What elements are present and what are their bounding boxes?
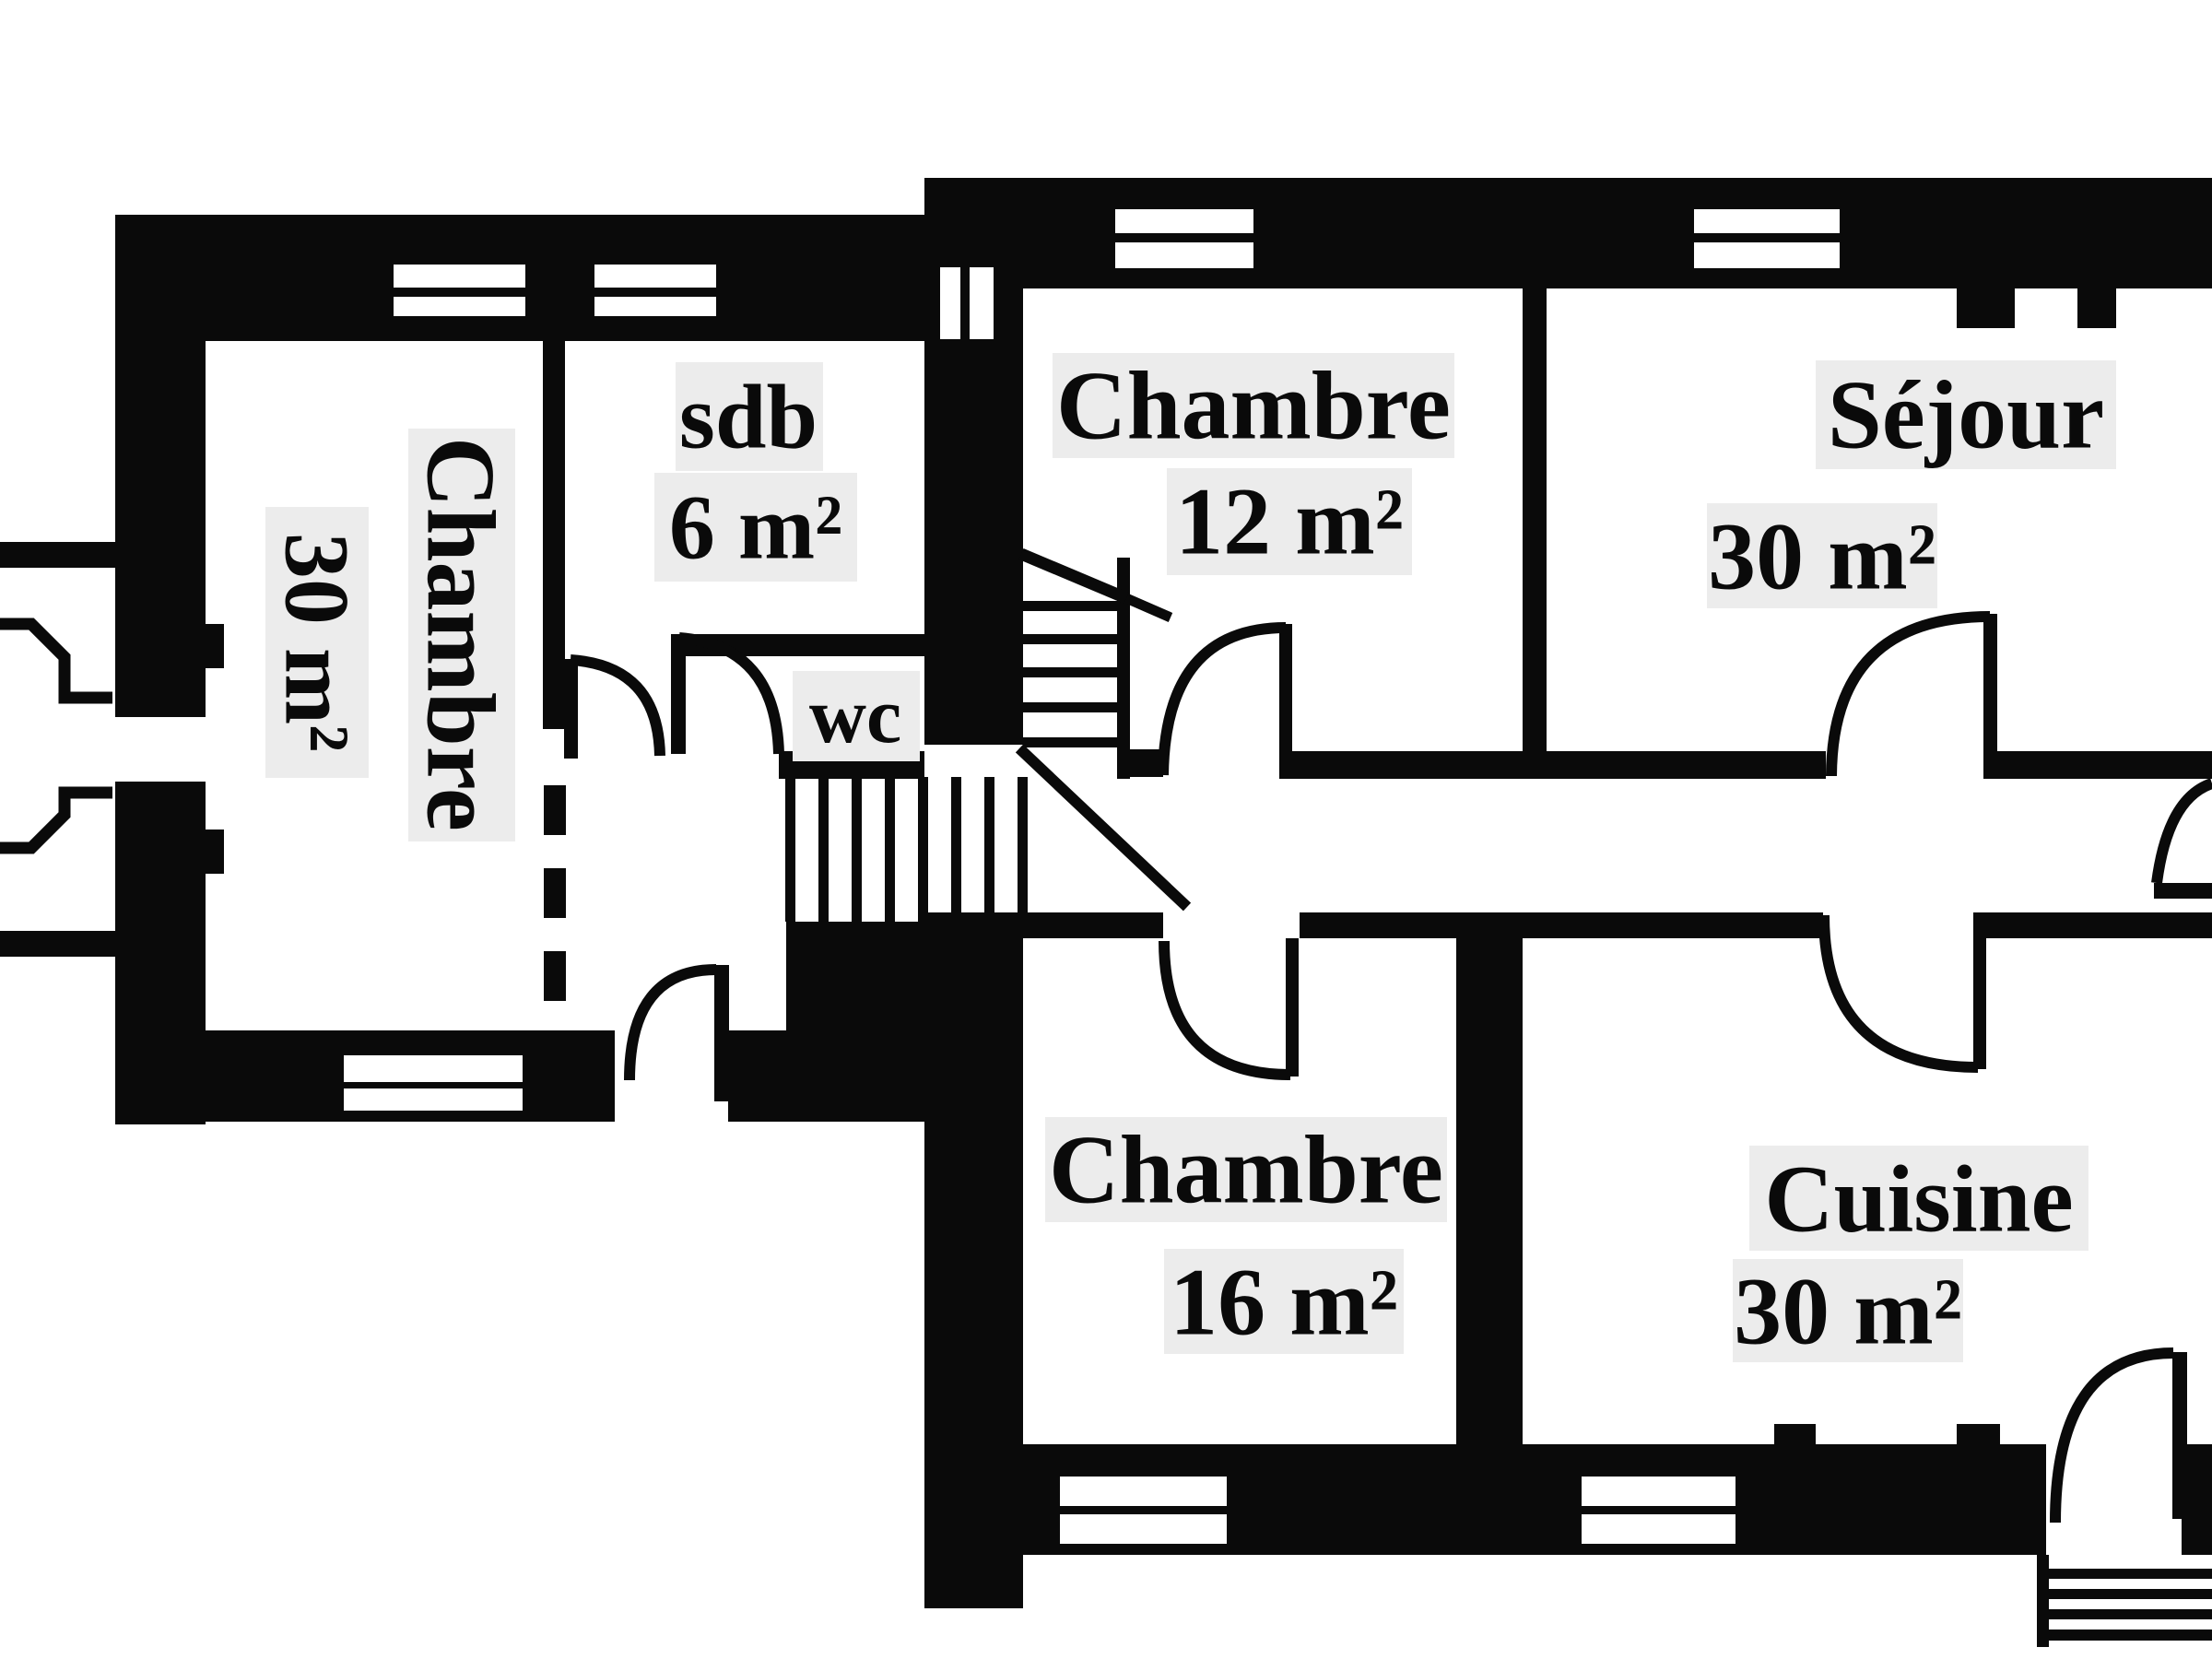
stairs-up-tread — [1023, 601, 1117, 611]
floor-plan-drawing: Chambre 30 m² sdb 6 m² wc Chambre 12 m² … — [0, 0, 2212, 1659]
door-jamb-tab-cuisine-right — [1957, 1424, 2000, 1444]
exterior-step — [2048, 1630, 2212, 1641]
room-area-sdb: 6 m² — [669, 477, 842, 579]
room-name-chambre-16: Chambre — [1049, 1116, 1443, 1224]
wall-corridor-lower-a — [1023, 912, 1163, 938]
exterior-step — [2048, 1589, 2212, 1599]
room-area-chambre-12: 12 m² — [1175, 469, 1404, 575]
wall-under-stairs-block — [786, 922, 924, 1030]
door-sdb-arc — [571, 660, 660, 756]
door-chambre12-arc — [1163, 628, 1286, 775]
door-chambre16-leaf — [1286, 938, 1299, 1077]
door-sejour-leaf — [1983, 614, 1997, 779]
window-pane — [1060, 1477, 1227, 1506]
room-name-cuisine: Cuisine — [1764, 1147, 2073, 1253]
stairs-handrail-tick — [1126, 598, 1171, 618]
window-pane — [1582, 1514, 1735, 1544]
porch-step-lower — [0, 793, 112, 848]
door-main-entry-leaf — [2154, 883, 2212, 899]
door-jamb-tab-cuisine-left — [1774, 1424, 1816, 1444]
window-pane — [1115, 209, 1253, 233]
door-main-entry-arc — [2157, 783, 2212, 883]
wall-partition-chambre30-sdb — [543, 341, 565, 729]
door-wc-leaf — [671, 634, 686, 754]
window-pane — [394, 265, 525, 288]
entry-jamb-tab-upper — [206, 624, 224, 668]
room-labels: Chambre 30 m² sdb 6 m² wc Chambre 12 m² … — [266, 352, 2105, 1365]
room-area-chambre-16: 16 m² — [1170, 1250, 1398, 1356]
room-name-chambre-30: Chambre — [407, 437, 515, 831]
room-name-wc: wc — [809, 671, 901, 759]
wall-corridor-lower-b — [1300, 912, 1823, 938]
door-cuisine-leaf — [1973, 912, 1986, 1069]
porch-line-top — [0, 542, 115, 568]
opening-cuisine-exterior-door — [2046, 1444, 2182, 1555]
door-rear-leaf — [714, 965, 729, 1101]
exterior-step — [2048, 1609, 2212, 1619]
exterior-step — [2048, 1569, 2212, 1579]
door-chambre12-leaf — [1279, 624, 1292, 779]
door-cuisine-arc — [1824, 915, 1978, 1067]
wall-corridor-lower-c — [1980, 912, 2212, 938]
wall-partition-chambre16-cuisine — [1456, 938, 1523, 1444]
window-pane — [344, 1088, 523, 1111]
stairs-up-tread — [1023, 634, 1117, 644]
entry-jamb-tab-lower — [206, 829, 224, 874]
wall-partition-chambre12-sejour — [1523, 288, 1547, 779]
wall-corridor-upper-c — [1991, 751, 2212, 779]
stairs-down-tread — [818, 777, 829, 922]
window-pane — [594, 297, 716, 316]
opening-annex-entry — [115, 717, 206, 782]
fireplace-tab-left — [1957, 288, 2015, 328]
window-pane — [1694, 209, 1840, 233]
door-sdb-leaf — [564, 659, 578, 759]
window-pane — [1582, 1477, 1735, 1506]
window-pane — [1694, 242, 1840, 268]
room-name-sdb: sdb — [679, 366, 818, 468]
porch-step-upper — [0, 624, 112, 698]
window-pane — [1115, 242, 1253, 268]
wall-left-wing-left — [115, 215, 206, 1124]
window-pane — [1060, 1514, 1227, 1544]
room-name-chambre-12: Chambre — [1056, 352, 1451, 460]
exterior-steps-edge — [2037, 1555, 2049, 1647]
room-area-chambre-30: 30 m² — [266, 533, 369, 752]
window-pane — [344, 1055, 523, 1082]
room-name-sejour: Séjour — [1828, 361, 2104, 469]
stairs-up-tread — [1023, 667, 1117, 677]
stairs-up-tread — [1023, 737, 1117, 747]
door-chambre16-arc — [1164, 941, 1290, 1075]
window-pane — [970, 267, 994, 339]
stairs-up-break-line — [1021, 554, 1126, 598]
stairs-down-tread — [852, 777, 862, 922]
stairs-down-tread — [785, 777, 795, 922]
window-pane — [594, 265, 716, 288]
room-area-sejour: 30 m² — [1708, 504, 1936, 610]
room-area-cuisine: 30 m² — [1734, 1259, 1962, 1365]
window-pane — [940, 267, 960, 339]
stairs-down-tread — [1018, 777, 1028, 922]
stairs-down-tread — [984, 777, 994, 922]
window-pane — [394, 297, 525, 316]
door-sejour-arc — [1831, 617, 1990, 776]
fireplace-tab-right — [2077, 288, 2116, 328]
wall-shared-lower — [924, 912, 1023, 1608]
door-cuisine-exterior-leaf — [2172, 1352, 2187, 1519]
porch-line-bottom — [0, 931, 115, 957]
stairs-down-tread — [951, 777, 961, 922]
wall-corridor-upper-b — [1288, 751, 1826, 779]
stairs-down-tread — [918, 777, 928, 922]
floor-plan-canvas: Chambre 30 m² sdb 6 m² wc Chambre 12 m² … — [0, 0, 2212, 1659]
stairs-up-tread — [1023, 702, 1117, 712]
stairs-down-tread — [885, 777, 895, 922]
